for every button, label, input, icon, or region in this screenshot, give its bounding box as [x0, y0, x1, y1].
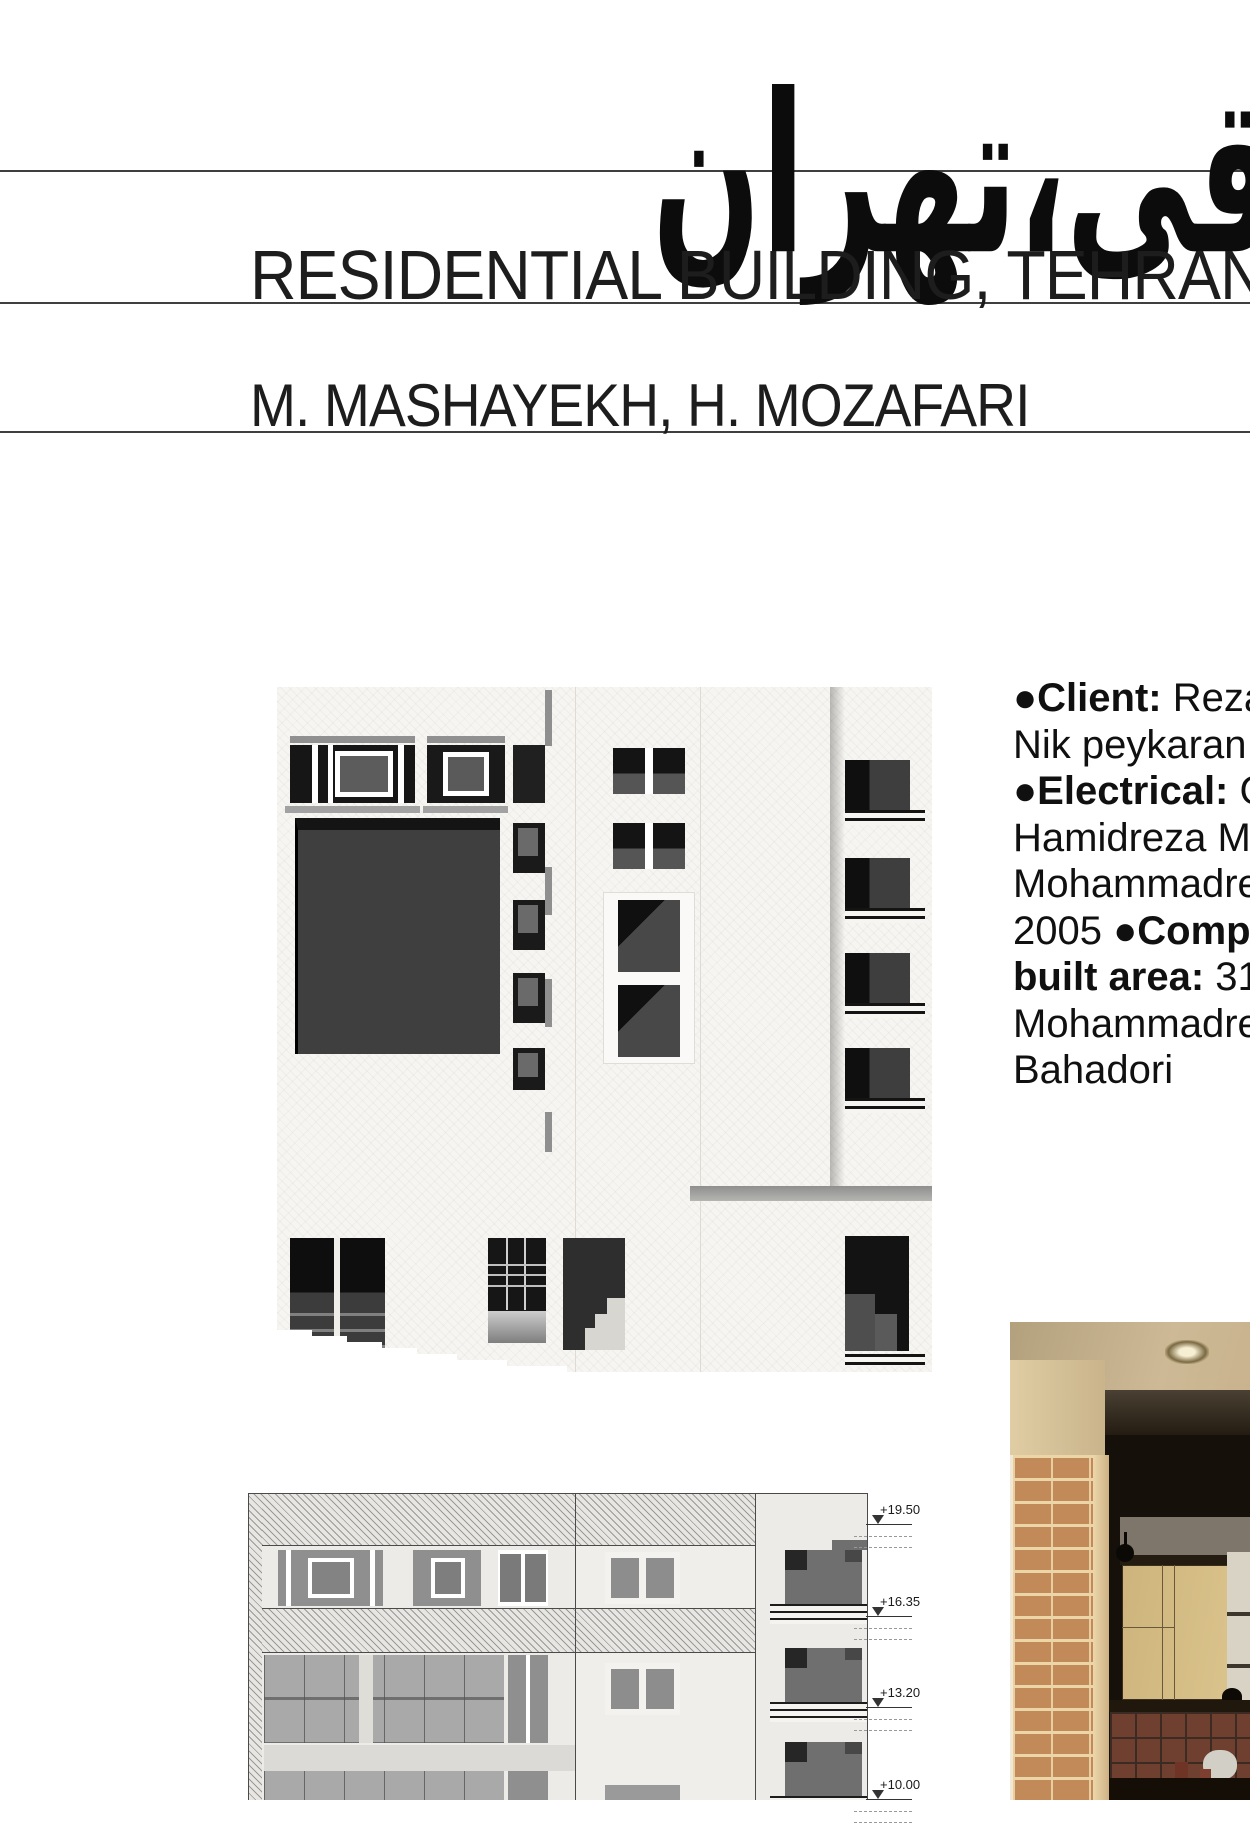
cabinet-divider: [1122, 1627, 1174, 1628]
render-step-cut: [507, 1366, 567, 1372]
info-value: 2005: [1013, 909, 1113, 953]
facade-canopy: [290, 736, 415, 743]
info-line: Mohammadre: [1013, 1001, 1250, 1048]
facade-glass: [518, 1053, 538, 1077]
facade-glass: [618, 900, 680, 972]
door-jamb: [1093, 1455, 1109, 1800]
page: { "titles": { "persian": "عراقی،تهران", …: [0, 0, 1250, 1800]
level-arrow-icon: [872, 1515, 884, 1524]
drawing-balcony-window: [785, 1742, 862, 1796]
level-label: +10.00: [880, 1777, 920, 1792]
info-line: Bahadori: [1013, 1047, 1250, 1094]
facade-mullion: [398, 745, 404, 803]
info-line: ●Client: Reza: [1013, 675, 1250, 722]
drawing-outline: [867, 1493, 868, 1800]
drawing-tower-window: [605, 1663, 680, 1715]
drawing-line: [262, 1545, 755, 1546]
facade-glass: [518, 978, 538, 1006]
render-step-cut: [417, 1354, 457, 1372]
facade-balcony-railing: [845, 1003, 925, 1018]
level-label: +19.50: [880, 1502, 920, 1517]
facade-balcony-railing: [845, 1098, 925, 1113]
drawing-line: [262, 1608, 755, 1609]
entrance-door: [488, 1238, 546, 1343]
drawing-glass: [312, 1562, 350, 1594]
ceiling-spotlight: [1165, 1340, 1209, 1364]
drawing-window-group: [278, 1550, 383, 1606]
facade-balcony-railing: [845, 810, 925, 825]
stair-step: [585, 1328, 595, 1350]
drawing-mullion: [526, 1655, 530, 1743]
counter-band: [1105, 1700, 1250, 1712]
panel-gap: [1227, 1612, 1250, 1616]
drawing-tower-window: [605, 1552, 680, 1604]
drawing-pier: [359, 1655, 373, 1743]
level-label: +16.35: [880, 1594, 920, 1609]
drawing-glazing: [264, 1655, 504, 1743]
drawing-roof-hatch: [262, 1493, 755, 1545]
facade-stair-window: [513, 900, 545, 950]
cabinet-divider: [1162, 1565, 1163, 1700]
kitchen-interior-photo: [1010, 1322, 1250, 1800]
facade-window-group: [290, 745, 415, 803]
info-value: Bahadori: [1013, 1048, 1173, 1092]
facade-balcony-railing: [845, 1354, 925, 1366]
level-line: [866, 1616, 912, 1617]
counter-shadow: [1105, 1778, 1250, 1800]
facade-mullion: [312, 745, 318, 803]
level-dash-line: [854, 1639, 912, 1640]
facade-glass: [653, 823, 685, 869]
drawing-glass: [525, 1554, 546, 1602]
garage-shade: [845, 1294, 875, 1351]
stair-recess: [563, 1238, 625, 1350]
photo-edge-sliver: [1010, 1455, 1013, 1800]
level-dash-line: [854, 1628, 912, 1629]
drawing-twopane-window: [498, 1550, 548, 1606]
drawing-glass: [646, 1669, 674, 1709]
level-line: [866, 1524, 912, 1525]
facade-twopane-window: [613, 823, 685, 869]
level-dash-line: [854, 1811, 912, 1812]
drawing-spandrel-hatch: [262, 1608, 755, 1652]
facade-twopane-window: [613, 748, 685, 794]
drawing-light-band: [264, 1745, 575, 1771]
info-line: built area: 31: [1013, 954, 1250, 1001]
pendant-bulb: [1116, 1544, 1134, 1562]
render-step-cut: [347, 1342, 382, 1372]
brick-pillar: [1013, 1455, 1093, 1800]
level-dash-line: [854, 1719, 912, 1720]
drawing-shade: [845, 1742, 862, 1754]
drawing-balcony-window: [785, 1550, 862, 1604]
level-line: [866, 1707, 912, 1708]
drawing-glass: [500, 1554, 521, 1602]
facade-glass: [613, 748, 645, 794]
facade-fin: [545, 979, 552, 1027]
facade-bay-window-unit: [603, 892, 695, 1064]
level-arrow-icon: [872, 1790, 884, 1799]
panel-gap: [1227, 1664, 1250, 1668]
info-value: G: [1239, 769, 1250, 813]
facade-slab-shadow: [690, 1186, 932, 1201]
facade-window-frame: [443, 752, 489, 796]
garage-door-right: [845, 1236, 909, 1351]
upper-cabinets: [1122, 1565, 1240, 1700]
facade-stair-window: [513, 1048, 545, 1090]
render-step-cut: [457, 1360, 507, 1372]
level-label: +13.20: [880, 1685, 920, 1700]
level-arrow-icon: [872, 1698, 884, 1707]
facade-fin: [545, 1112, 552, 1152]
drawing-glass: [611, 1669, 639, 1709]
info-value: 31: [1215, 955, 1250, 999]
facade-window-group: [427, 745, 505, 803]
facade-balcony-window: [845, 953, 910, 1003]
building-elevation-drawing: [248, 1493, 868, 1800]
facade-large-glazing: [295, 818, 500, 1054]
info-label: ●Electrical:: [1013, 769, 1239, 813]
drawing-frame: [308, 1558, 354, 1598]
facade-sill: [285, 806, 420, 813]
render-step-cut: [382, 1348, 417, 1372]
drawing-wall-hatch: [248, 1493, 262, 1800]
facade-stair-window: [513, 973, 545, 1023]
garage-shade: [875, 1314, 897, 1351]
drawing-frame: [431, 1558, 465, 1598]
stair-step: [607, 1298, 625, 1350]
level-dash-line: [854, 1536, 912, 1537]
entrance-mullion: [488, 1285, 546, 1287]
drawing-railing: [770, 1796, 868, 1800]
drawing-balcony-window: [785, 1648, 862, 1702]
facade-window: [513, 745, 545, 803]
facade-shadow: [830, 687, 845, 1192]
info-line: Mohammadre: [1013, 861, 1250, 908]
info-label: ●Compl: [1113, 909, 1250, 953]
facade-glass: [618, 985, 680, 1057]
building-elevation-render: [277, 687, 932, 1372]
drawing-shade: [845, 1550, 862, 1562]
entrance-mullion: [488, 1274, 546, 1276]
drawing-window: [508, 1771, 548, 1800]
entrance-panel: [488, 1311, 546, 1343]
drawing-glass: [646, 1558, 674, 1598]
facade-glass: [448, 757, 484, 791]
drawing-glass: [435, 1562, 461, 1594]
info-label: built area:: [1013, 955, 1215, 999]
facade-fin: [545, 867, 552, 915]
page-title-english: RESIDENTIAL BUILDING, TEHRAN: [250, 240, 1250, 310]
drawing-shade: [785, 1550, 807, 1570]
level-dash-line: [854, 1730, 912, 1731]
entrance-mullion: [488, 1264, 546, 1266]
info-value: Mohammadre: [1013, 1002, 1250, 1046]
facade-glass: [340, 756, 388, 792]
render-step-cut: [312, 1336, 347, 1372]
drawing-window-group: [413, 1550, 481, 1606]
side-panel: [1227, 1552, 1250, 1707]
page-subtitle-architects: M. MASHAYEKH, H. MOZAFARI: [250, 376, 1030, 436]
drawing-line: [262, 1652, 755, 1653]
facade-stair-window: [513, 823, 545, 873]
drawing-line: [575, 1493, 576, 1800]
drawing-line: [755, 1493, 756, 1800]
facade-balcony-window: [845, 760, 910, 810]
level-arrow-icon: [872, 1607, 884, 1616]
facade-glass: [653, 748, 685, 794]
drawing-shade: [785, 1648, 807, 1668]
drawing-mullion: [370, 1550, 375, 1606]
drawing-shade: [845, 1648, 862, 1660]
facade-sill: [423, 806, 508, 813]
facade-fin: [545, 690, 552, 746]
facade-joint-line: [700, 687, 701, 1372]
cabinet-divider: [1174, 1565, 1175, 1700]
info-value: Hamidreza Mo: [1013, 816, 1250, 860]
facade-window-frame: [335, 751, 393, 797]
drawing-railing: [770, 1604, 868, 1624]
info-line: 2005 ●Compl: [1013, 908, 1250, 955]
facade-mullion: [328, 745, 333, 803]
opening-header: [1105, 1390, 1250, 1435]
stair-step: [595, 1314, 607, 1350]
facade-glass: [518, 905, 538, 933]
drawing-window: [508, 1655, 548, 1743]
drawing-outline: [248, 1493, 249, 1800]
facade-balcony-window: [845, 1048, 910, 1098]
level-dash-line: [854, 1547, 912, 1548]
facade-glass: [613, 823, 645, 869]
drawing-tower-window: [605, 1785, 680, 1800]
info-line: Nik peykaran: [1013, 722, 1250, 769]
drawing-outline: [248, 1493, 868, 1494]
facade-canopy: [427, 736, 505, 743]
info-value: Mohammadre: [1013, 862, 1250, 906]
drawing-glazing: [264, 1771, 504, 1800]
project-info: ●Client: RezaNik peykaran ●Electrical: G…: [1013, 675, 1250, 1094]
drawing-mullion: [286, 1550, 291, 1606]
facade-glass: [518, 828, 538, 856]
drawing-shade: [785, 1742, 807, 1762]
drawing-notch: [832, 1540, 868, 1550]
facade-balcony-window: [845, 858, 910, 908]
info-line: Hamidreza Mo: [1013, 815, 1250, 862]
info-line: ●Electrical: G: [1013, 768, 1250, 815]
info-label: ●Client:: [1013, 676, 1173, 720]
info-value: Nik peykaran: [1013, 723, 1246, 767]
info-value: Reza: [1173, 676, 1250, 720]
facade-balcony-railing: [845, 908, 925, 923]
render-step-cut: [277, 1330, 312, 1372]
drawing-glass: [611, 1558, 639, 1598]
